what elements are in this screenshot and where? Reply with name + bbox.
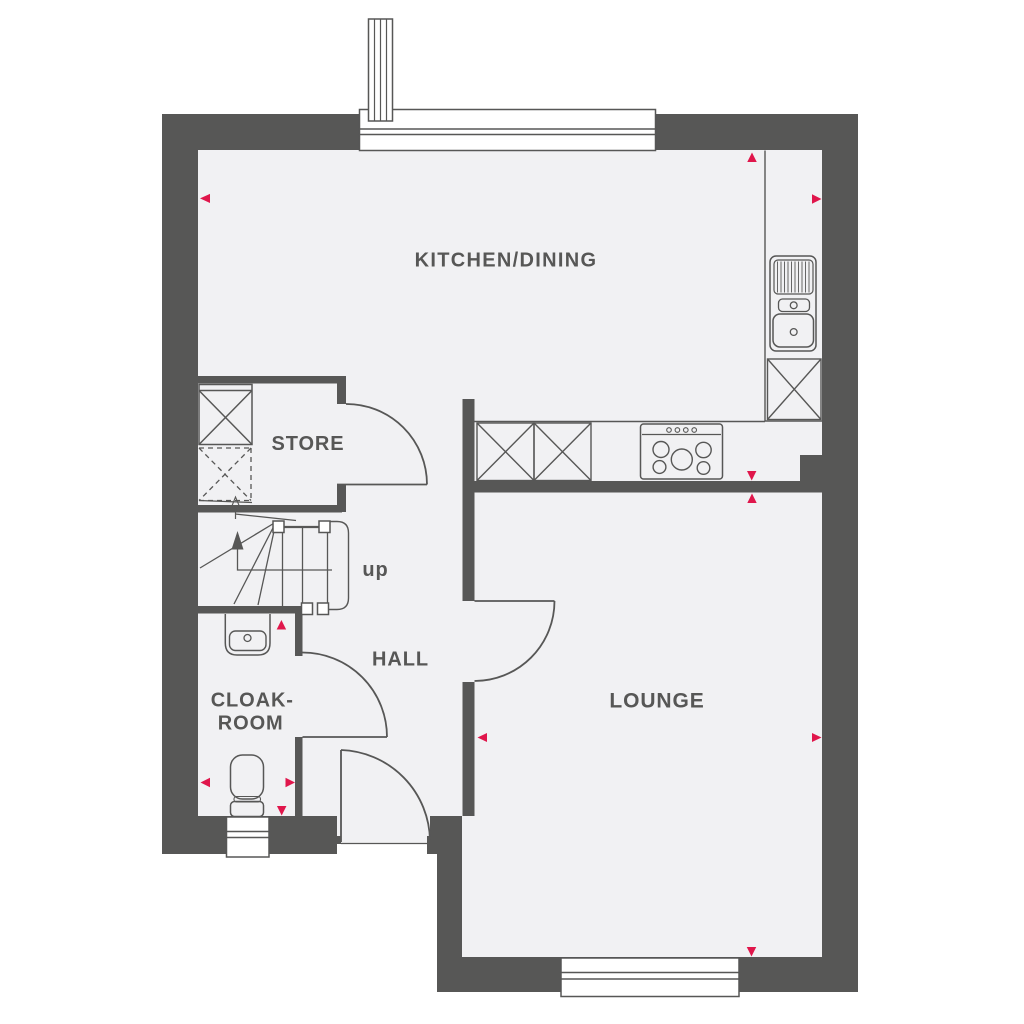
svg-text:ROOM: ROOM <box>218 713 284 735</box>
svg-text:STORE: STORE <box>271 433 344 455</box>
svg-text:HALL: HALL <box>372 649 429 671</box>
svg-text:KITCHEN/DINING: KITCHEN/DINING <box>415 250 598 272</box>
svg-text:CLOAK-: CLOAK- <box>211 690 294 712</box>
svg-text:LOUNGE: LOUNGE <box>609 690 704 713</box>
svg-text:up: up <box>362 559 388 581</box>
